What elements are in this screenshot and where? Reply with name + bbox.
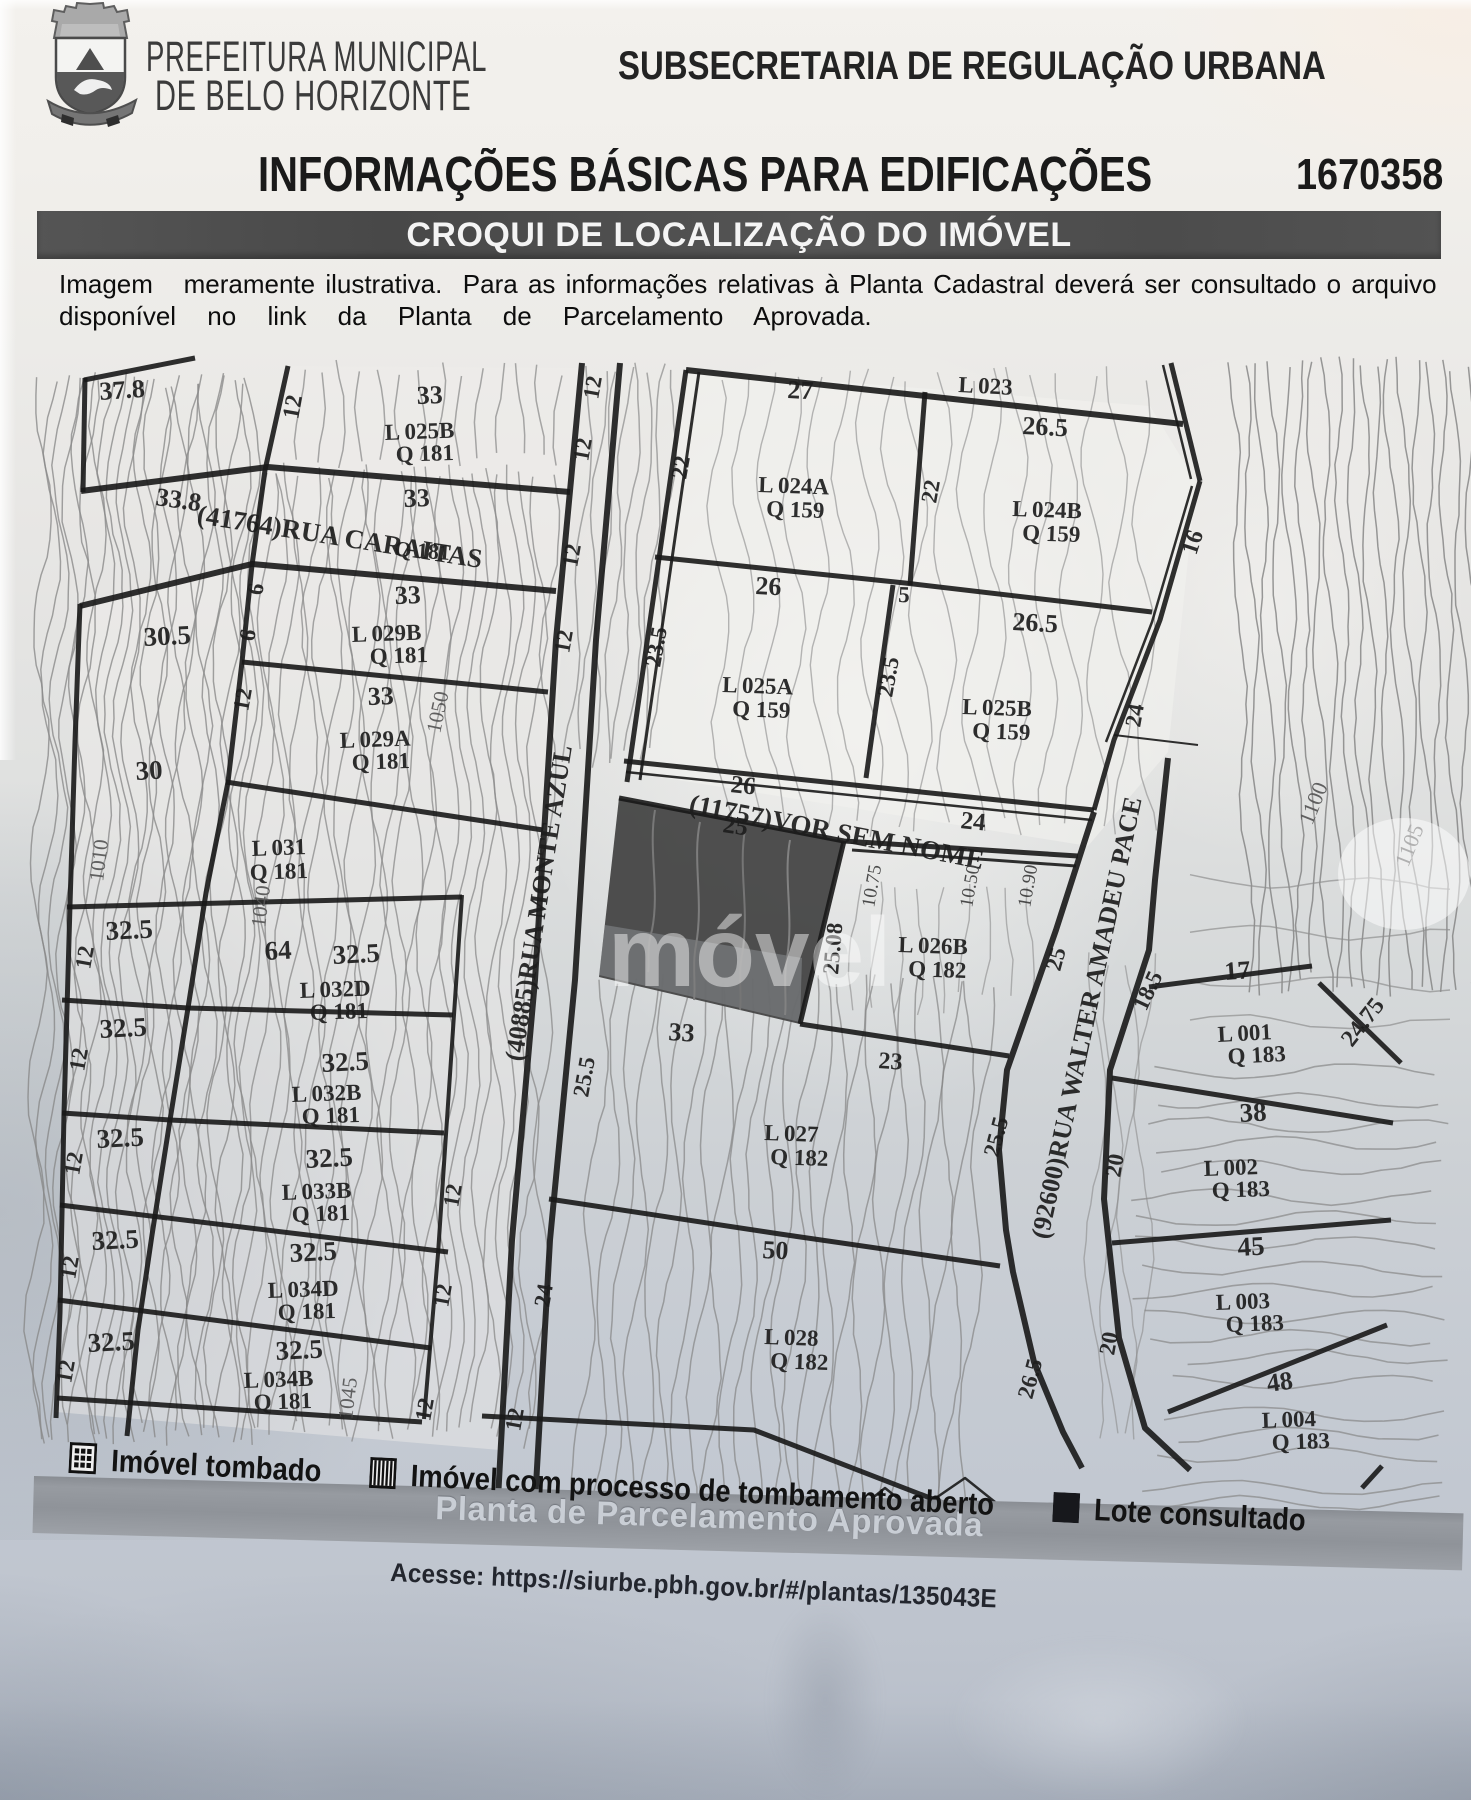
svg-text:23: 23 (878, 1048, 904, 1076)
svg-text:33: 33 (416, 380, 443, 410)
svg-text:18.5: 18.5 (1128, 967, 1168, 1014)
svg-text:12: 12 (64, 1046, 93, 1073)
svg-text:32.5: 32.5 (99, 1012, 148, 1044)
svg-text:27: 27 (787, 375, 814, 405)
svg-text:64: 64 (264, 935, 293, 966)
svg-text:12: 12 (410, 1396, 439, 1423)
svg-text:17: 17 (1223, 955, 1251, 986)
svg-text:24: 24 (959, 807, 987, 837)
svg-text:24: 24 (529, 1281, 558, 1308)
svg-text:12: 12 (228, 686, 257, 713)
svg-text:32.5: 32.5 (305, 1142, 354, 1174)
svg-text:12: 12 (51, 1358, 80, 1385)
svg-text:Q 181: Q 181 (309, 998, 368, 1025)
svg-text:12: 12 (70, 944, 99, 971)
svg-text:33: 33 (394, 580, 421, 610)
svg-text:Q 181: Q 181 (351, 748, 410, 775)
svg-text:Q 181: Q 181 (249, 858, 308, 885)
svg-text:10.90: 10.90 (1014, 863, 1042, 909)
svg-text:25: 25 (721, 811, 750, 841)
svg-text:12: 12 (500, 1406, 529, 1433)
svg-text:25.5: 25.5 (568, 1055, 600, 1099)
svg-text:Q 181: Q 181 (253, 1388, 312, 1415)
svg-text:5: 5 (898, 582, 910, 607)
svg-text:26.5: 26.5 (1012, 607, 1059, 638)
svg-text:12: 12 (557, 542, 586, 569)
svg-text:Q 159: Q 159 (972, 718, 1031, 745)
svg-text:37.8: 37.8 (98, 374, 145, 406)
svg-text:12: 12 (278, 393, 308, 421)
svg-text:Q 182: Q 182 (770, 1144, 829, 1171)
svg-text:Q 159: Q 159 (1022, 520, 1081, 547)
svg-text:32.5: 32.5 (105, 914, 154, 946)
svg-text:32.5: 32.5 (289, 1236, 338, 1268)
svg-text:L 031: L 031 (251, 834, 306, 861)
svg-text:12: 12 (568, 436, 597, 463)
svg-text:33: 33 (668, 1017, 696, 1048)
svg-text:Q 181: Q 181 (395, 440, 454, 467)
svg-text:Q 159: Q 159 (766, 496, 825, 523)
svg-text:12: 12 (549, 628, 578, 655)
svg-text:32.5: 32.5 (87, 1326, 136, 1358)
svg-text:22: 22 (916, 478, 945, 505)
svg-text:Q 183: Q 183 (1271, 1428, 1330, 1455)
svg-text:12: 12 (428, 1282, 457, 1309)
svg-text:26.5: 26.5 (1022, 411, 1069, 442)
svg-text:Q 182: Q 182 (770, 1348, 829, 1375)
svg-text:32.5: 32.5 (332, 938, 381, 970)
svg-text:26: 26 (755, 571, 782, 601)
svg-text:Q 159: Q 159 (732, 696, 791, 723)
svg-text:45: 45 (1237, 1231, 1266, 1262)
svg-text:Q 181: Q 181 (291, 1200, 350, 1227)
svg-text:25.5: 25.5 (979, 1114, 1014, 1159)
svg-text:Q 181: Q 181 (277, 1298, 336, 1325)
svg-text:L 027: L 027 (764, 1120, 819, 1147)
svg-text:L 028: L 028 (764, 1324, 819, 1351)
svg-text:20: 20 (1094, 1330, 1123, 1357)
svg-text:22: 22 (666, 454, 695, 481)
svg-text:33.8: 33.8 (154, 482, 203, 517)
svg-text:12: 12 (578, 374, 607, 401)
svg-text:Q 183: Q 183 (1211, 1176, 1270, 1203)
svg-text:24: 24 (1120, 701, 1149, 728)
svg-text:50: 50 (762, 1235, 789, 1265)
svg-text:33: 33 (403, 483, 430, 513)
svg-text:32.5: 32.5 (275, 1334, 324, 1366)
svg-text:Q 183: Q 183 (1227, 1041, 1286, 1069)
svg-text:L 023: L 023 (958, 372, 1014, 400)
svg-text:38: 38 (1239, 1097, 1268, 1128)
svg-text:32.5: 32.5 (91, 1224, 140, 1256)
svg-text:1010: 1010 (84, 838, 113, 883)
svg-text:1045: 1045 (333, 1376, 362, 1421)
svg-text:Q 181: Q 181 (369, 642, 428, 669)
svg-text:32.5: 32.5 (321, 1046, 370, 1078)
svg-text:30.5: 30.5 (143, 620, 192, 652)
svg-text:32.5: 32.5 (96, 1122, 145, 1154)
svg-text:12: 12 (438, 1182, 467, 1209)
svg-text:móvel: móvel (608, 897, 891, 1007)
svg-text:Q 181: Q 181 (394, 536, 451, 565)
svg-text:48: 48 (1265, 1366, 1295, 1398)
svg-text:12: 12 (55, 1254, 84, 1281)
svg-text:20: 20 (1100, 1152, 1129, 1179)
svg-text:26.5: 26.5 (1013, 1356, 1048, 1401)
svg-text:25: 25 (1041, 945, 1071, 974)
svg-text:30: 30 (135, 755, 164, 786)
svg-text:33: 33 (367, 681, 394, 711)
svg-text:Q 182: Q 182 (908, 956, 967, 983)
svg-text:12: 12 (59, 1150, 88, 1177)
svg-text:1040: 1040 (246, 884, 275, 929)
svg-text:Q 183: Q 183 (1225, 1310, 1284, 1337)
svg-text:Q 181: Q 181 (301, 1102, 360, 1129)
